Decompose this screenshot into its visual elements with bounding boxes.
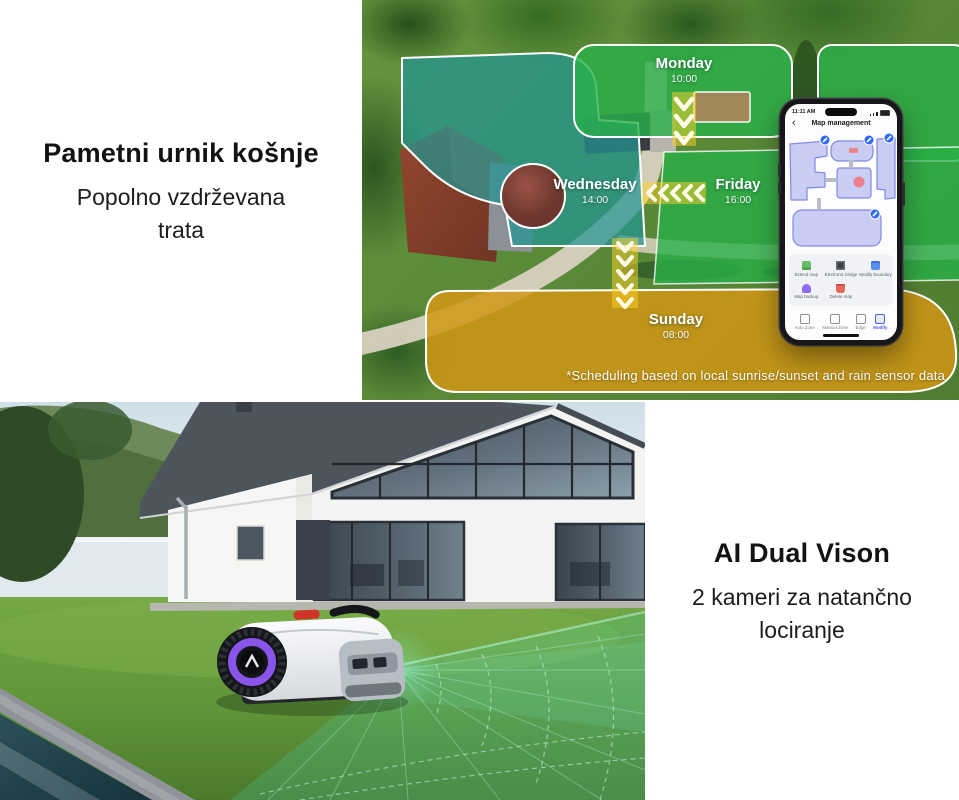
edge-icon xyxy=(856,314,866,324)
phone-volume-up-button xyxy=(778,164,781,176)
action-delete-map[interactable]: Delete map xyxy=(830,284,852,300)
toolbar-manual-zone[interactable]: Manual Zone xyxy=(822,314,848,331)
phone-screen-title: Map management xyxy=(785,120,897,127)
aerial-schedule-image: Monday 10:00 Wednesday 14:00 Friday 16:0… xyxy=(362,0,959,400)
lawn-map-canvas[interactable] xyxy=(785,132,897,252)
action-modify-boundary[interactable]: Modify boundary xyxy=(859,261,891,277)
vision-heading: AI Dual Vison xyxy=(714,538,890,569)
product-page: Pametni urnik košnje Popolno vzdrževana … xyxy=(0,0,959,800)
phone-power-button xyxy=(902,182,905,206)
vision-text-panel: AI Dual Vison 2 kameri za natančno locir… xyxy=(645,402,959,800)
phone-volume-down-button xyxy=(778,182,781,194)
schedule-disclaimer: *Scheduling based on local sunrise/sunse… xyxy=(566,368,945,383)
house-mower-graphics xyxy=(0,402,645,800)
modify-icon xyxy=(875,314,885,324)
status-time: 11:11 AM xyxy=(792,109,815,115)
house-mower-photo xyxy=(0,402,645,800)
phone-nav-bar: ‹ Map management xyxy=(785,117,897,132)
map-backup-icon xyxy=(802,284,811,293)
map-actions-card: Extend map Electronic bridge Modify boun… xyxy=(789,254,893,306)
toolbar-edge[interactable]: Edge xyxy=(856,314,866,331)
electronic-bridge-icon xyxy=(836,261,845,270)
toolbar-modify[interactable]: Modify xyxy=(873,314,887,331)
auto-zone-icon xyxy=(800,314,810,324)
delete-map-icon xyxy=(836,284,845,293)
action-map-backup[interactable]: Map backup xyxy=(794,284,818,300)
extend-map-icon xyxy=(802,261,811,270)
action-extend-map[interactable]: Extend map xyxy=(795,261,818,277)
home-indicator xyxy=(823,334,859,337)
schedule-text-panel: Pametni urnik košnje Popolno vzdrževana … xyxy=(0,0,362,400)
action-electronic-bridge[interactable]: Electronic bridge xyxy=(825,261,858,277)
vision-subheading: 2 kameri za natančno lociranje xyxy=(682,581,922,646)
phone-mockup: 11:11 AM ‹ Map management xyxy=(780,99,902,345)
schedule-subheading: Popolno vzdrževana trata xyxy=(55,181,307,246)
toolbar-auto-zone[interactable]: Auto Zone xyxy=(795,314,815,331)
manual-zone-icon xyxy=(830,314,840,324)
signal-wifi-battery-icons xyxy=(870,110,890,116)
schedule-heading: Pametni urnik košnje xyxy=(43,138,319,169)
phone-bottom-toolbar: Auto Zone Manual Zone Edge Modify xyxy=(787,314,895,331)
modify-boundary-icon xyxy=(871,261,880,270)
